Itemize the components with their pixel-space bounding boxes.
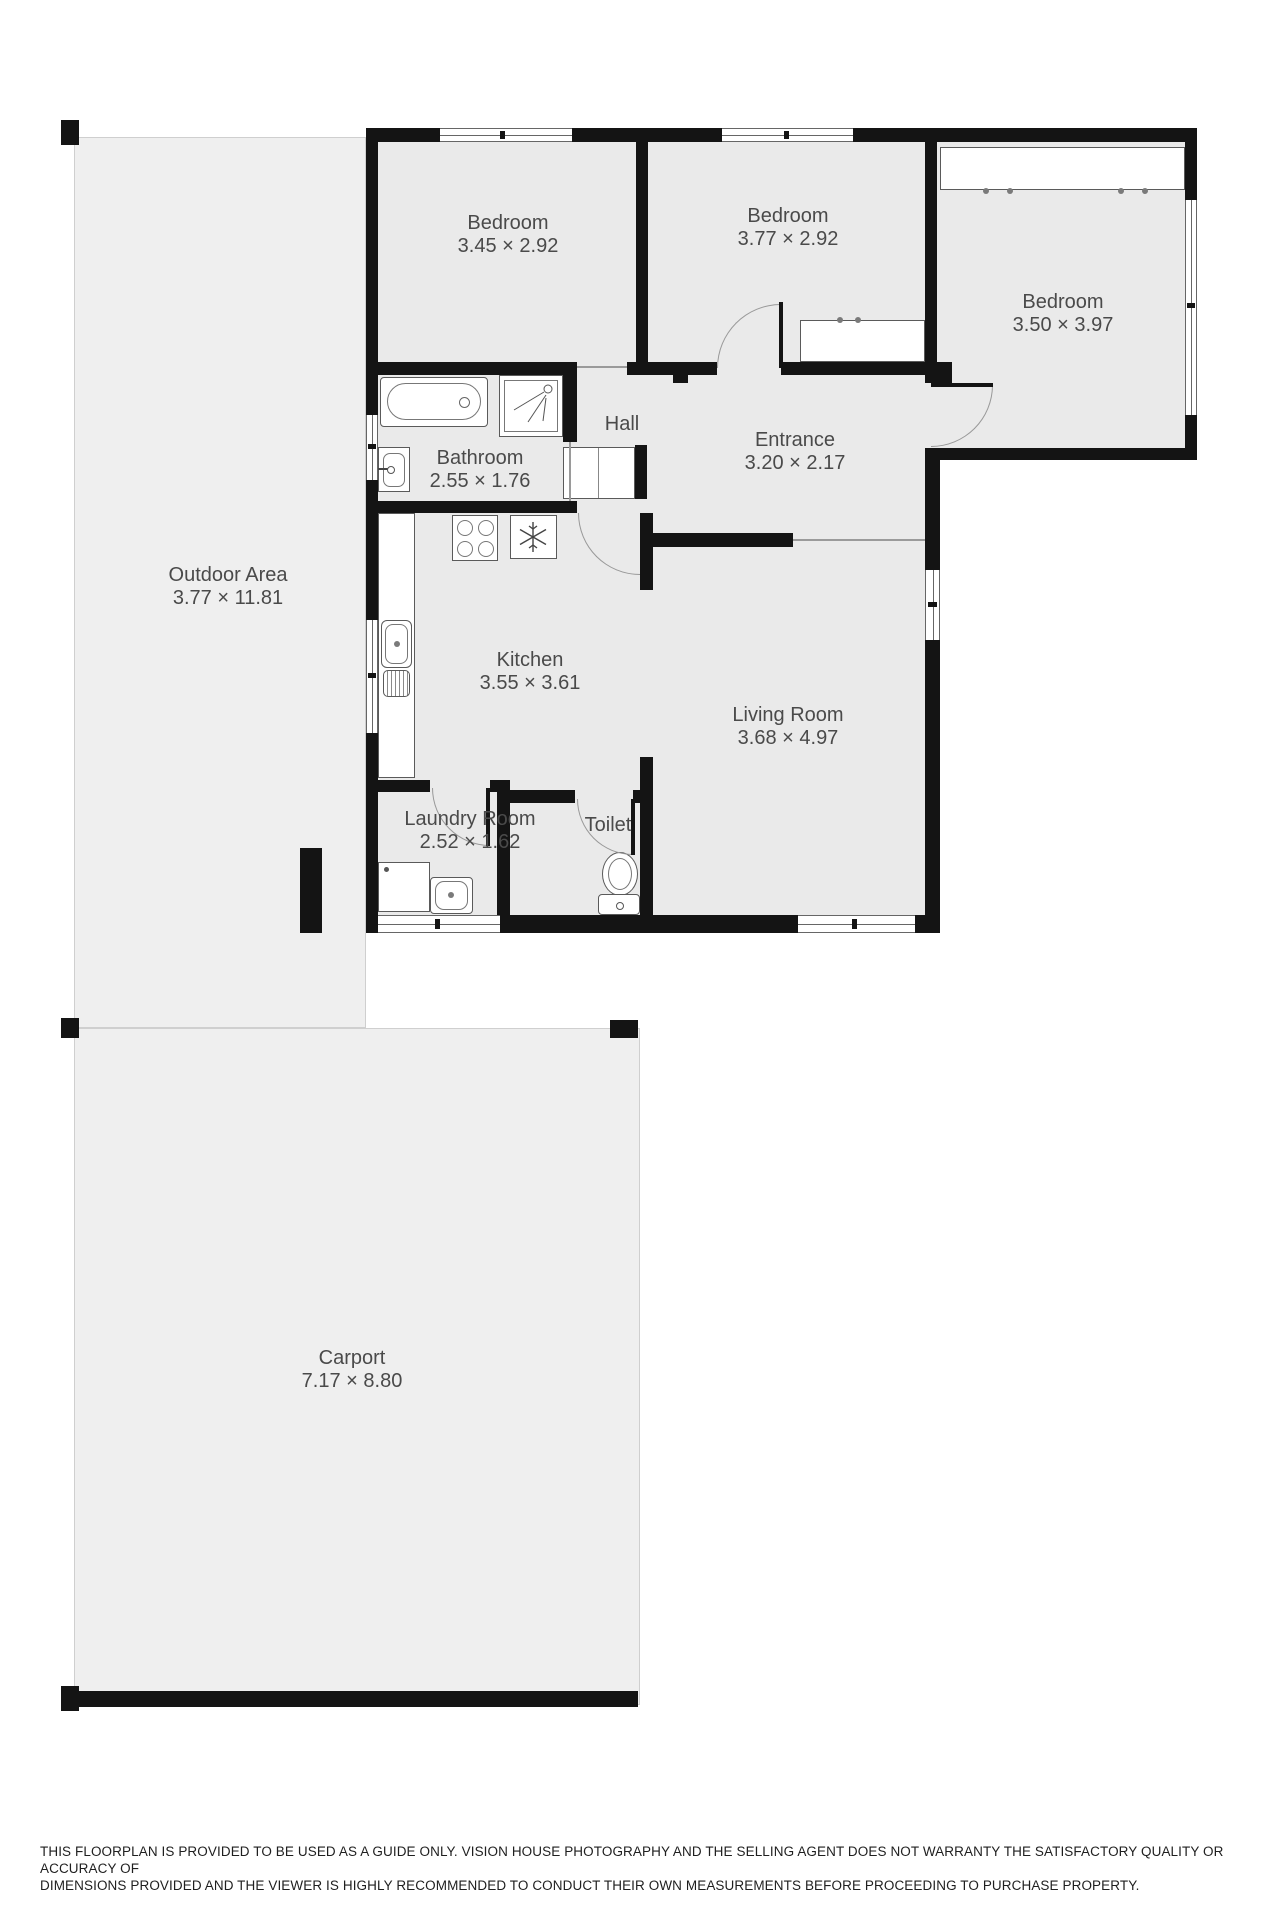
room-name: Entrance bbox=[745, 429, 846, 452]
room-dims: 3.45 × 2.92 bbox=[458, 235, 559, 258]
outdoor-corner-tick bbox=[61, 120, 79, 145]
toilet-icon bbox=[602, 852, 638, 896]
wall bbox=[366, 480, 378, 620]
bathroom-sink-icon bbox=[378, 447, 410, 492]
snowflake-icon bbox=[511, 516, 556, 558]
hall-closet bbox=[563, 447, 635, 499]
carport-corner-tick bbox=[610, 1020, 638, 1038]
room-dims: 2.55 × 1.76 bbox=[430, 470, 531, 493]
shower-icon bbox=[499, 375, 563, 437]
disclaimer-line-2: DIMENSIONS PROVIDED AND THE VIEWER IS HI… bbox=[40, 1877, 1250, 1894]
room-name: Living Room bbox=[732, 704, 843, 727]
window-mullion bbox=[784, 131, 789, 139]
wall bbox=[853, 128, 1197, 142]
label-bedroom1: Bedroom 3.45 × 2.92 bbox=[458, 212, 559, 258]
bedroom3-wardrobe bbox=[940, 147, 1185, 190]
room-dims: 7.17 × 8.80 bbox=[302, 1370, 403, 1393]
label-bedroom2: Bedroom 3.77 × 2.92 bbox=[738, 205, 839, 251]
label-toilet: Toilet bbox=[585, 814, 632, 837]
kitchen-drainer-icon bbox=[383, 670, 410, 697]
window-mullion bbox=[435, 919, 440, 929]
room-name: Hall bbox=[605, 413, 639, 436]
room-name: Laundry Room bbox=[404, 808, 535, 831]
label-entrance: Entrance 3.20 × 2.17 bbox=[745, 429, 846, 475]
wall bbox=[925, 640, 940, 933]
room-name: Carport bbox=[302, 1347, 403, 1370]
bathtub-icon bbox=[380, 377, 488, 427]
room-dims: 3.68 × 4.97 bbox=[732, 727, 843, 750]
wall bbox=[366, 128, 378, 415]
wall bbox=[500, 915, 798, 933]
label-outdoor-area: Outdoor Area 3.77 × 11.81 bbox=[169, 564, 288, 610]
bedroom2-wardrobe bbox=[800, 320, 925, 362]
stove-icon bbox=[452, 515, 498, 561]
room-name: Toilet bbox=[585, 814, 632, 837]
fridge-icon bbox=[510, 515, 557, 559]
label-living-room: Living Room 3.68 × 4.97 bbox=[732, 704, 843, 750]
room-name: Outdoor Area bbox=[169, 564, 288, 587]
window-mullion bbox=[1187, 303, 1195, 308]
window-mullion bbox=[852, 919, 857, 929]
wall bbox=[640, 513, 653, 590]
room-dims: 2.52 × 1.62 bbox=[404, 831, 535, 854]
opening-bedroom1 bbox=[577, 366, 627, 368]
wall bbox=[640, 757, 653, 915]
door-leaf bbox=[779, 302, 783, 368]
wall bbox=[563, 375, 577, 442]
wall bbox=[636, 142, 648, 375]
room-dims: 3.77 × 11.81 bbox=[169, 587, 288, 610]
label-hall: Hall bbox=[605, 413, 639, 436]
window-icon bbox=[440, 128, 572, 142]
floorplan-canvas: Bedroom 3.45 × 2.92 Bedroom 3.77 × 2.92 … bbox=[0, 0, 1280, 1920]
room-name: Bedroom bbox=[1013, 291, 1114, 314]
opening-bathroom bbox=[569, 442, 571, 501]
kitchen-sink-icon bbox=[381, 620, 412, 668]
wall bbox=[1185, 128, 1197, 200]
wall bbox=[925, 448, 1197, 460]
label-bathroom: Bathroom 2.55 × 1.76 bbox=[430, 447, 531, 493]
label-carport: Carport 7.17 × 8.80 bbox=[302, 1347, 403, 1393]
room-name: Bathroom bbox=[430, 447, 531, 470]
room-name: Bedroom bbox=[458, 212, 559, 235]
wall bbox=[366, 733, 378, 933]
disclaimer-line-1: THIS FLOORPLAN IS PROVIDED TO BE USED AS… bbox=[40, 1843, 1250, 1877]
laundry-sink-icon bbox=[430, 877, 473, 914]
wall bbox=[510, 790, 575, 803]
wall bbox=[1185, 415, 1197, 460]
carport-corner-tick bbox=[61, 1018, 79, 1038]
label-kitchen: Kitchen 3.55 × 3.61 bbox=[480, 649, 581, 695]
shower-spray-icon bbox=[500, 376, 562, 436]
outdoor-wall-stub bbox=[300, 848, 322, 933]
carport-corner-tick bbox=[61, 1686, 79, 1711]
toilet-tank bbox=[598, 894, 640, 915]
room-name: Kitchen bbox=[480, 649, 581, 672]
room-dims: 3.20 × 2.17 bbox=[745, 452, 846, 475]
wall bbox=[925, 448, 940, 570]
room-name: Bedroom bbox=[738, 205, 839, 228]
opening-living bbox=[793, 539, 925, 541]
wall bbox=[673, 375, 688, 383]
label-laundry-room: Laundry Room 2.52 × 1.62 bbox=[404, 808, 535, 854]
laundry-counter bbox=[378, 862, 430, 912]
wall bbox=[572, 128, 722, 142]
wall bbox=[635, 445, 647, 499]
wall bbox=[651, 533, 793, 547]
room-dims: 3.50 × 3.97 bbox=[1013, 314, 1114, 337]
wall bbox=[925, 128, 937, 383]
window-mullion bbox=[928, 602, 937, 607]
disclaimer-text: THIS FLOORPLAN IS PROVIDED TO BE USED AS… bbox=[40, 1843, 1250, 1894]
room-dims: 3.77 × 2.92 bbox=[738, 228, 839, 251]
window-mullion bbox=[500, 131, 505, 139]
carport-wall bbox=[70, 1691, 638, 1707]
room-dims: 3.55 × 3.61 bbox=[480, 672, 581, 695]
door-leaf bbox=[931, 383, 993, 387]
label-bedroom3: Bedroom 3.50 × 3.97 bbox=[1013, 291, 1114, 337]
window-mullion bbox=[368, 444, 376, 449]
wall bbox=[366, 362, 577, 375]
window-mullion bbox=[368, 673, 376, 678]
wall bbox=[366, 501, 577, 513]
